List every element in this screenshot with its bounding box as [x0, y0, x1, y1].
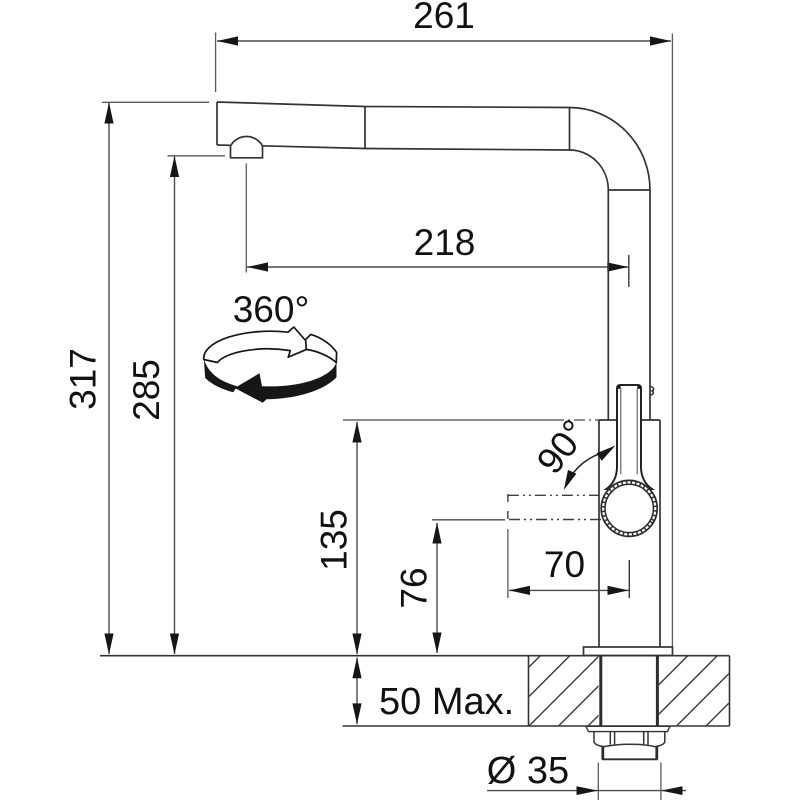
svg-text:70: 70 — [544, 544, 585, 585]
svg-text:Ø 35: Ø 35 — [487, 750, 569, 792]
svg-text:218: 218 — [414, 222, 476, 263]
svg-text:317: 317 — [63, 348, 104, 410]
svg-text:135: 135 — [314, 509, 355, 571]
svg-text:76: 76 — [394, 567, 435, 608]
svg-text:261: 261 — [413, 0, 475, 36]
svg-text:360°: 360° — [233, 289, 310, 330]
svg-text:285: 285 — [126, 359, 167, 421]
svg-text:50 Max.: 50 Max. — [379, 681, 514, 723]
